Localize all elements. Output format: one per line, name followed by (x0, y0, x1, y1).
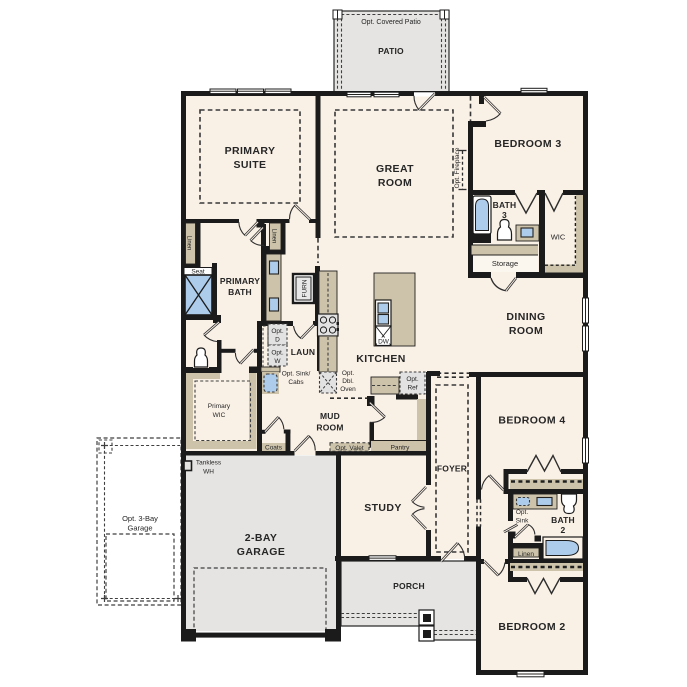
svg-text:Ref: Ref (407, 385, 417, 392)
svg-text:WIC: WIC (213, 412, 226, 419)
svg-text:Linen: Linen (186, 236, 192, 251)
svg-text:BEDROOM 3: BEDROOM 3 (494, 138, 561, 150)
svg-text:MUD: MUD (320, 411, 340, 421)
svg-text:WH: WH (203, 469, 214, 476)
svg-text:ROOM: ROOM (378, 177, 412, 189)
svg-text:FURN: FURN (302, 279, 309, 297)
svg-text:STUDY: STUDY (364, 502, 402, 514)
svg-text:GARAGE: GARAGE (237, 546, 286, 558)
svg-text:DW: DW (378, 339, 390, 346)
svg-text:BEDROOM 4: BEDROOM 4 (498, 415, 565, 427)
svg-text:Opt.: Opt. (406, 376, 418, 383)
svg-text:Opt. Covered Patio: Opt. Covered Patio (361, 19, 421, 26)
svg-text:SUITE: SUITE (234, 159, 267, 171)
svg-text:D: D (275, 337, 280, 344)
svg-text:BATH: BATH (551, 515, 575, 525)
svg-text:Garage: Garage (127, 524, 152, 533)
svg-text:3: 3 (502, 210, 507, 220)
svg-text:Seat: Seat (191, 269, 205, 276)
svg-text:Dbl.: Dbl. (342, 378, 354, 385)
svg-text:Sink: Sink (516, 518, 529, 525)
svg-text:WIC: WIC (551, 233, 566, 242)
svg-text:Oven: Oven (340, 386, 356, 393)
svg-text:Opt.: Opt. (342, 370, 354, 377)
svg-text:PRIMARY: PRIMARY (220, 276, 260, 286)
svg-text:Opt. Valet: Opt. Valet (335, 445, 364, 452)
svg-text:Primary: Primary (208, 403, 231, 410)
svg-text:LAUN: LAUN (291, 347, 315, 357)
svg-text:GREAT: GREAT (376, 163, 414, 175)
svg-text:DINING: DINING (506, 311, 545, 323)
svg-text:Linen: Linen (271, 229, 277, 244)
svg-text:BATH: BATH (228, 287, 252, 297)
svg-text:2: 2 (561, 525, 566, 535)
svg-text:W: W (274, 358, 281, 365)
svg-text:Cabs: Cabs (288, 379, 304, 386)
svg-text:ROOM: ROOM (509, 325, 543, 337)
svg-text:Opt. Sink/: Opt. Sink/ (282, 371, 311, 378)
svg-text:Tankless: Tankless (196, 460, 222, 467)
svg-text:PATIO: PATIO (378, 46, 404, 56)
svg-text:Opt.: Opt. (516, 509, 528, 516)
svg-text:Pantry: Pantry (391, 445, 411, 452)
svg-text:FOYER: FOYER (437, 464, 467, 474)
svg-text:BATH: BATH (493, 200, 517, 210)
svg-text:Opt. 3-Bay: Opt. 3-Bay (122, 514, 158, 523)
svg-text:Linen: Linen (518, 551, 534, 558)
svg-text:Opt.: Opt. (271, 350, 283, 357)
svg-text:2-BAY: 2-BAY (245, 532, 278, 544)
svg-text:Opt.: Opt. (271, 328, 283, 335)
svg-text:Storage: Storage (492, 259, 518, 268)
svg-text:Coats: Coats (265, 445, 283, 452)
svg-text:KITCHEN: KITCHEN (356, 353, 405, 365)
svg-text:PRIMARY: PRIMARY (225, 145, 276, 157)
svg-text:Opt. Fireplace: Opt. Fireplace (454, 147, 461, 188)
svg-text:BEDROOM 2: BEDROOM 2 (498, 621, 565, 633)
svg-text:PORCH: PORCH (393, 581, 425, 591)
svg-text:ROOM: ROOM (316, 423, 343, 433)
